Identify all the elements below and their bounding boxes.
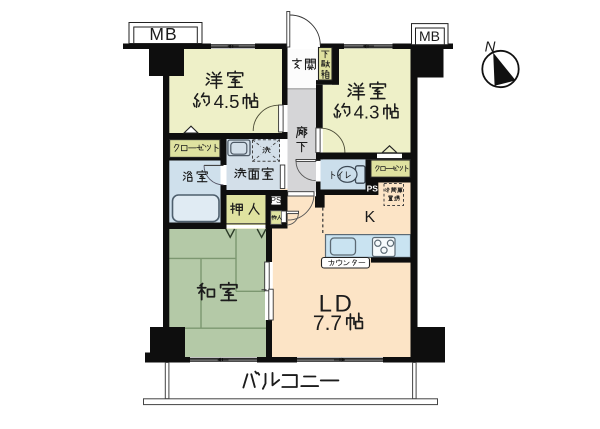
svg-text:4.5: 4.5 <box>214 91 240 112</box>
svg-text:PS: PS <box>271 196 282 205</box>
svg-text:7.7: 7.7 <box>313 312 342 335</box>
svg-text:MB: MB <box>419 28 440 44</box>
svg-text:N: N <box>485 39 496 56</box>
svg-text:PS: PS <box>367 183 379 193</box>
svg-text:4.3: 4.3 <box>354 101 380 122</box>
svg-text:MB: MB <box>149 24 177 44</box>
svg-text:K: K <box>364 209 375 226</box>
